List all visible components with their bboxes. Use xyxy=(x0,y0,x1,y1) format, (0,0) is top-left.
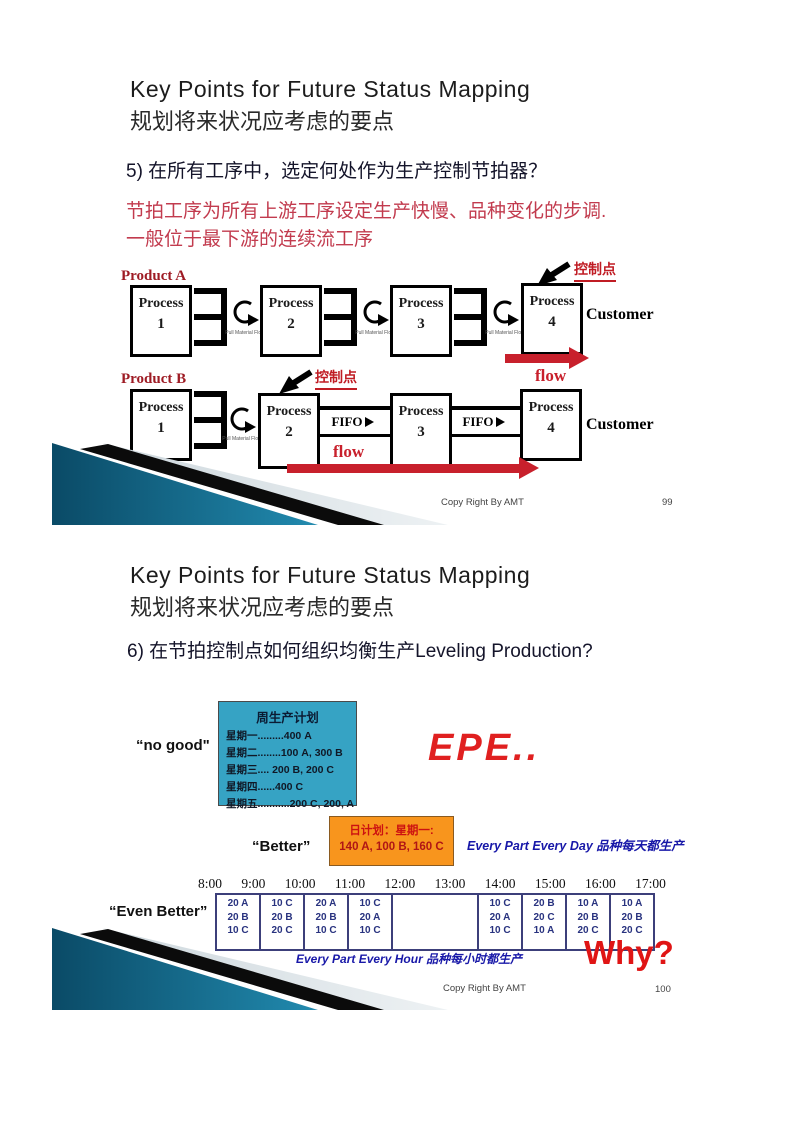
weekly-plan-title: 周生产计划 xyxy=(219,707,356,726)
product-b-label: Product B xyxy=(121,371,186,388)
takt-note-line1: 节拍工序为所有上游工序设定生产快慢、品种变化的步调. xyxy=(126,196,606,223)
schedule-cell-line: 20 A xyxy=(217,897,259,911)
fifo-arrow-icon xyxy=(365,417,379,427)
process-number: 4 xyxy=(524,314,580,331)
schedule-cell-line: 20 A xyxy=(305,897,347,911)
epe-text: EPE.. xyxy=(428,727,540,770)
slide2-subtitle: 规划将来状况应考虑的要点 xyxy=(130,590,394,622)
daily-plan-values: 140 A, 100 B, 160 C xyxy=(330,841,453,853)
time-label: 11:00 xyxy=(335,876,365,892)
supermarket-icon xyxy=(194,288,227,346)
time-label: 16:00 xyxy=(585,876,616,892)
schedule-cell-line: 20 B xyxy=(261,911,303,925)
process-number: 1 xyxy=(133,420,189,437)
slide1-subtitle: 规划将来状况应考虑的要点 xyxy=(130,104,394,136)
flow-arrowhead-b xyxy=(519,457,539,479)
copyright-text: Copy Right By AMT xyxy=(441,497,524,508)
fifo-arrow-icon xyxy=(496,417,510,427)
flow-arrow-a xyxy=(505,354,569,363)
schedule-cell-line: 20 B xyxy=(611,911,653,925)
schedule-cell-line: 10 C xyxy=(479,924,521,938)
schedule-cell-line: 10 C xyxy=(349,897,391,911)
schedule-cell-line: 20 B xyxy=(567,911,609,925)
schedule-cell: 20 B 20 C 10 A xyxy=(523,895,567,949)
process-number: 2 xyxy=(261,424,317,441)
process-box-a3: Process 3 xyxy=(390,285,452,357)
process-word: Process xyxy=(133,296,189,312)
page-number: 99 xyxy=(662,497,673,508)
product-a-label: Product A xyxy=(121,268,186,285)
process-number: 3 xyxy=(393,424,449,441)
schedule-cell-line: 20 A xyxy=(479,911,521,925)
weekly-plan-line: 星期四......400 C xyxy=(226,779,356,794)
takt-note-line2: 一般位于最下游的连续流工序 xyxy=(126,224,373,251)
every-part-every-day-caption: Every Part Every Day 品种每天都生产 xyxy=(467,835,684,854)
control-point-label-b: 控制点 xyxy=(315,367,357,390)
schedule-cell-line: 10 C xyxy=(261,897,303,911)
time-label: 8:00 xyxy=(198,876,222,892)
pull-arrow-icon xyxy=(359,297,389,327)
fifo-lane-2: FIFO xyxy=(452,406,520,437)
process-word: Process xyxy=(523,400,579,416)
schedule-cell-line: 20 B xyxy=(305,911,347,925)
process-box-a4: Process 4 xyxy=(521,283,583,355)
page-number: 100 xyxy=(655,984,671,995)
process-box-b4: Process 4 xyxy=(520,389,582,461)
copyright-text: Copy Right By AMT xyxy=(443,983,526,994)
weekly-plan-line: 星期五...........200 C, 200, A xyxy=(226,796,356,811)
schedule-cell-line: 20 C xyxy=(523,911,565,925)
process-box-a1: Process 1 xyxy=(130,285,192,357)
time-label: 9:00 xyxy=(241,876,265,892)
better-label: “Better” xyxy=(252,838,310,855)
process-word: Process xyxy=(261,404,317,420)
process-word: Process xyxy=(393,404,449,420)
process-word: Process xyxy=(524,294,580,310)
time-label: 15:00 xyxy=(535,876,566,892)
process-word: Process xyxy=(133,400,189,416)
schedule-cell-line: 10 A xyxy=(567,897,609,911)
corner-wedge-decoration xyxy=(50,926,454,1010)
schedule-cell-line: 20 B xyxy=(217,911,259,925)
slide-2: Key Points for Future Status Mapping 规划将… xyxy=(0,560,794,1123)
weekly-plan-line: 星期三.... 200 B, 200 C xyxy=(226,762,356,777)
time-label: 10:00 xyxy=(285,876,316,892)
slide-1: Key Points for Future Status Mapping 规划将… xyxy=(0,0,794,560)
even-better-label: “Even Better” xyxy=(109,903,207,920)
process-number: 2 xyxy=(263,316,319,333)
daily-plan-box: 日计划：星期一: 140 A, 100 B, 160 C xyxy=(329,816,454,866)
control-point-label-a: 控制点 xyxy=(574,259,616,282)
time-axis: 8:00 9:00 10:00 11:00 12:00 13:00 14:00 … xyxy=(198,876,666,892)
schedule-cell: 10 C 20 A 10 C xyxy=(479,895,523,949)
supermarket-icon xyxy=(454,288,487,346)
flow-arrowhead-a xyxy=(569,347,589,369)
process-box-a2: Process 2 xyxy=(260,285,322,357)
time-label: 17:00 xyxy=(635,876,666,892)
fifo-lane-1: FIFO xyxy=(320,406,390,437)
time-label: 14:00 xyxy=(485,876,516,892)
process-number: 3 xyxy=(393,316,449,333)
control-point-arrow-icon xyxy=(536,261,572,287)
pull-arrow-icon xyxy=(226,404,256,434)
schedule-cell-line: 20 B xyxy=(523,897,565,911)
slide2-title: Key Points for Future Status Mapping xyxy=(130,562,530,589)
weekly-plan-box: 周生产计划 星期一.........400 A 星期二........100 A… xyxy=(218,701,357,806)
point-5-text: 5) 在所有工序中，选定何处作为生产控制节拍器？ xyxy=(126,156,547,183)
schedule-cell-line: 10 A xyxy=(523,924,565,938)
why-text: Why? xyxy=(584,934,674,972)
process-word: Process xyxy=(393,296,449,312)
flow-label-a: flow xyxy=(535,366,566,386)
process-number: 1 xyxy=(133,316,189,333)
fifo-label: FIFO xyxy=(462,414,493,430)
schedule-cell-line: 10 C xyxy=(479,897,521,911)
fifo-label: FIFO xyxy=(331,414,362,430)
supermarket-icon xyxy=(324,288,357,346)
customer-label-a: Customer xyxy=(586,306,654,324)
schedule-cell-line: 20 A xyxy=(349,911,391,925)
pull-arrow-icon xyxy=(229,297,259,327)
time-label: 12:00 xyxy=(384,876,415,892)
weekly-plan-line: 星期二........100 A, 300 B xyxy=(226,745,356,760)
customer-label-b: Customer xyxy=(586,416,654,434)
time-label: 13:00 xyxy=(435,876,466,892)
process-number: 4 xyxy=(523,420,579,437)
daily-plan-title: 日计划：星期一: xyxy=(330,822,453,838)
corner-wedge-decoration xyxy=(50,441,454,525)
process-word: Process xyxy=(263,296,319,312)
control-point-arrow-icon xyxy=(278,369,314,395)
weekly-plan-line: 星期一.........400 A xyxy=(226,728,356,743)
pull-arrow-icon xyxy=(489,297,519,327)
point-6-text: 6) 在节拍控制点如何组织均衡生产Leveling Production? xyxy=(127,636,593,663)
schedule-cell-line: 10 A xyxy=(611,897,653,911)
no-good-label: “no good" xyxy=(136,737,210,754)
slide1-title: Key Points for Future Status Mapping xyxy=(130,76,530,103)
document-page: Key Points for Future Status Mapping 规划将… xyxy=(0,0,794,1123)
